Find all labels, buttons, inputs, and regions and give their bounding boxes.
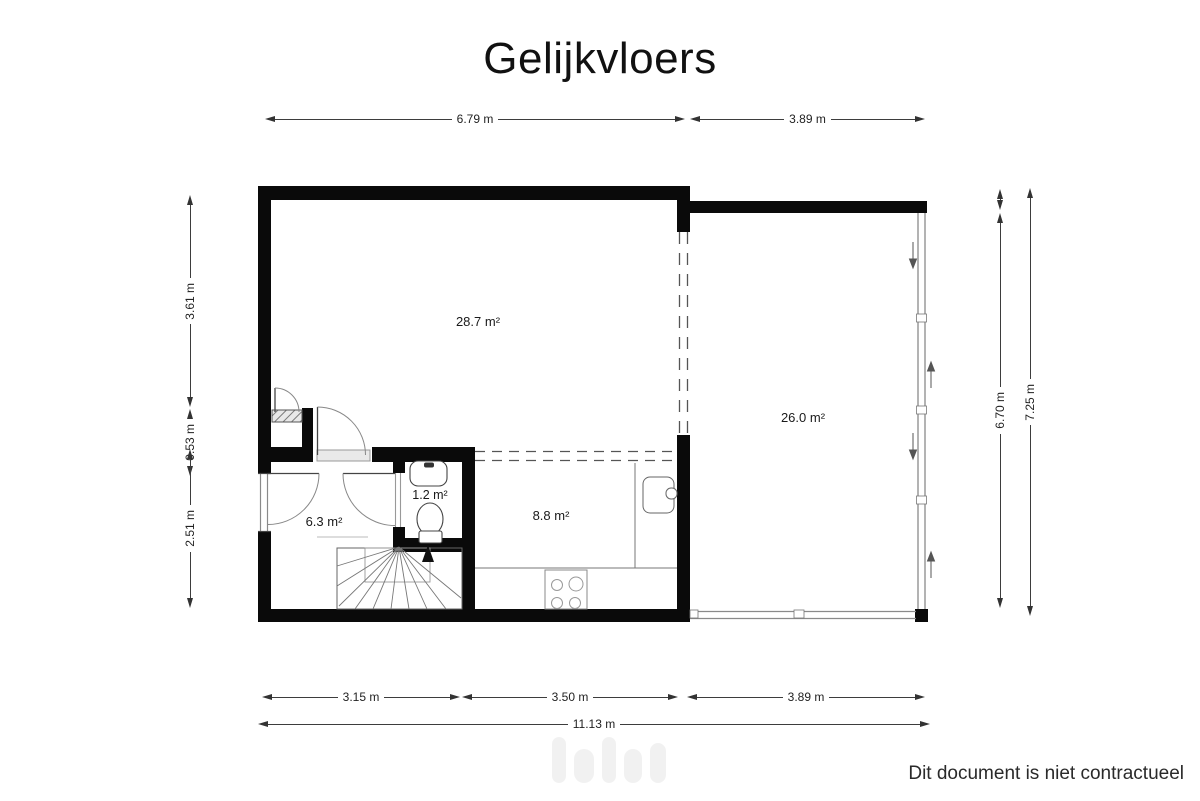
dim-right-inner: 6.70 m [991,213,1009,608]
living-terrace-opening [680,232,688,435]
dim-top-right: 3.89 m [690,112,925,126]
dim-label: 6.70 m [993,392,1007,429]
kitchen-open-boundary [475,452,677,461]
floor-plan-page: Gelijkvloers [0,0,1200,801]
watermark [552,737,682,785]
dim-top-left: 6.79 m [265,112,685,126]
disclaimer-text: Dit document is niet contractueel [908,763,1184,785]
wall-main-bottom [258,609,690,622]
wall-main-top [258,186,690,200]
wc-fixtures [410,461,447,543]
wall-wc-left-upper [393,455,405,473]
kitchen-fittings [475,463,677,609]
wall-left-lower [258,532,271,622]
dim-label: 7.25 m [1023,384,1037,421]
living-hall-door [318,407,366,455]
dim-label: 3.89 m [789,112,826,126]
wall-right-lower [677,435,690,609]
dim-label: 3.61 m [183,283,197,320]
wall-left-upper [258,186,271,473]
walls [258,186,928,622]
staircase [337,545,462,609]
dim-label: 2.51 m [183,510,197,547]
dim-label: 3.89 m [788,690,825,704]
wall-kitchen [462,447,475,609]
wall-right-upper [677,200,690,232]
dim-right-outer: 7.25 m [1021,188,1039,616]
room-label-living: 28.7 m² [428,314,528,329]
dim-label: 6.79 m [457,112,494,126]
wall-terrace-corner [915,609,928,622]
dashed-openings [475,232,688,461]
dim-right-small [991,189,1009,210]
room-label-kitchen: 8.8 m² [501,508,601,523]
room-label-wc: 1.2 m² [395,488,465,502]
dim-label: 11.13 m [573,717,615,731]
room-label-hall: 6.3 m² [274,514,374,529]
dim-left-middle: 0.53 m [181,409,199,447]
dim-bottom-total: 11.13 m [258,717,930,731]
wall-wc-top [372,447,475,462]
dim-bottom-3: 3.89 m [687,690,925,704]
wall-terrace-top [690,201,927,213]
entrance-door [275,388,299,412]
kitchen-sink [643,477,677,513]
dim-left-lower: 2.51 m [181,449,199,608]
wc-toilet [417,503,443,543]
dim-left-upper: 3.61 m [181,195,199,407]
stove [545,570,587,609]
hall-door-sill [317,450,370,461]
dim-label: 3.15 m [343,690,380,704]
room-label-terrace: 26.0 m² [753,410,853,425]
wall-entry-stub [302,408,313,455]
glass-mullions [690,314,927,618]
dim-bottom-2: 3.50 m [462,690,678,704]
dim-label: 3.50 m [552,690,589,704]
window-left-wall [258,473,271,532]
entrance-threshold [272,410,302,422]
stair-treads [337,547,461,609]
dim-bottom-1: 3.15 m [262,690,460,704]
stair-outline [337,548,462,609]
wc-sink [410,461,447,486]
